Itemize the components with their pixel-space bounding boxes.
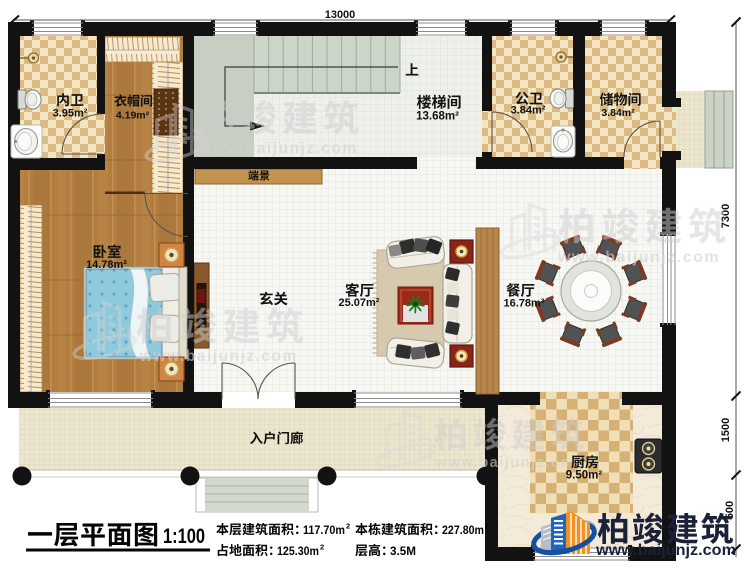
svg-text:3.84m²: 3.84m² [511,105,546,117]
svg-text:7300: 7300 [720,204,732,228]
svg-text:125.30m: 125.30m [277,546,319,558]
svg-text:227.80m: 227.80m [442,525,484,537]
svg-text:2: 2 [320,543,324,552]
svg-text:3.84m²: 3.84m² [601,107,635,119]
svg-text:14.78m²: 14.78m² [86,259,127,271]
svg-text:www.baijunjz.com: www.baijunjz.com [595,542,736,559]
svg-text:13000: 13000 [325,9,356,21]
svg-text:3.95m²: 3.95m² [53,108,88,120]
svg-text:2: 2 [346,522,350,531]
svg-text:www.baijunjz.com: www.baijunjz.com [557,249,720,266]
svg-text:1500: 1500 [720,418,732,442]
svg-text:4.19m²: 4.19m² [116,110,150,122]
svg-text:13.68m²: 13.68m² [416,111,459,123]
svg-text:117.70m: 117.70m [303,525,345,537]
svg-text:3.5M: 3.5M [390,546,416,558]
svg-text:16.78m²: 16.78m² [504,298,545,310]
svg-text:9.50m²: 9.50m² [566,470,603,482]
svg-text:www.baijunjz.com: www.baijunjz.com [435,455,585,471]
svg-text:www.baijunjz.com: www.baijunjz.com [139,348,298,365]
svg-text:www.baijunjz.com: www.baijunjz.com [199,140,358,157]
svg-text:1:100: 1:100 [163,525,205,548]
svg-text:25.07m²: 25.07m² [339,297,380,309]
svg-text:2: 2 [485,522,489,531]
